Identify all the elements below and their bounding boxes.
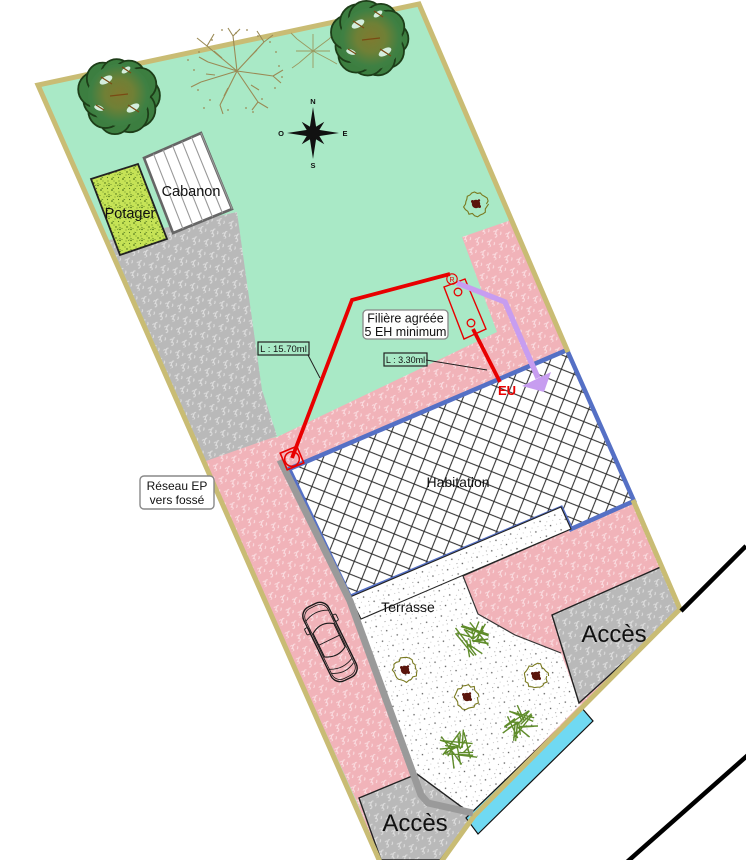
svg-text:L : 15.70ml: L : 15.70ml <box>260 344 307 355</box>
svg-text:vers fossé: vers fossé <box>150 493 205 507</box>
svg-text:S: S <box>310 161 315 170</box>
svg-text:EU: EU <box>498 383 516 398</box>
svg-text:O: O <box>278 129 284 138</box>
svg-text:E: E <box>342 129 347 138</box>
svg-text:Cabanon: Cabanon <box>162 184 221 200</box>
svg-text:Accès: Accès <box>581 621 646 648</box>
svg-text:Terrasse: Terrasse <box>381 599 435 615</box>
svg-text:5 EH minimum: 5 EH minimum <box>365 325 447 339</box>
svg-text:Potager: Potager <box>105 206 156 222</box>
svg-text:Filière agréée: Filière agréée <box>367 312 443 326</box>
svg-text:L : 3.30ml: L : 3.30ml <box>386 355 425 365</box>
svg-text:Habitation: Habitation <box>426 474 489 490</box>
svg-text:N: N <box>310 97 315 106</box>
svg-text:Réseau EP: Réseau EP <box>147 479 208 493</box>
svg-text:Accès: Accès <box>382 810 447 837</box>
